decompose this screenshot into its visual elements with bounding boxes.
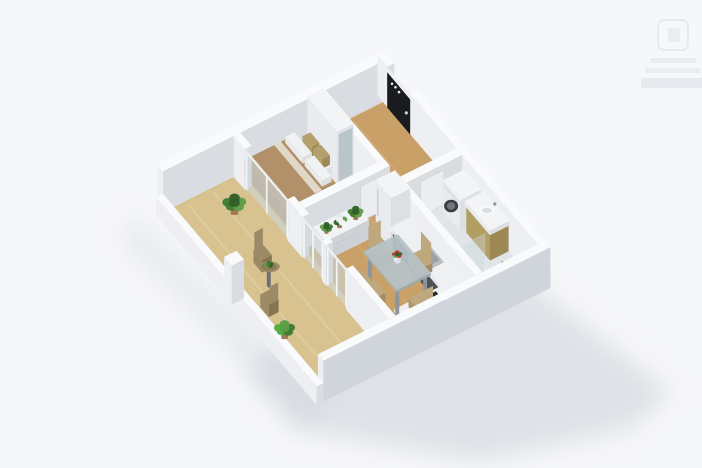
watermark-text-line-3 [641, 78, 702, 88]
bedroom-window-mullion [266, 176, 268, 215]
entrance-door-sign-2 [394, 86, 397, 89]
bedroom-window-frame-2 [286, 200, 288, 239]
floorplan-canvas [0, 0, 702, 468]
vanity-faucet [493, 202, 496, 205]
living-window-2-frame-2 [345, 269, 347, 308]
watermark-text-line-2 [645, 68, 700, 73]
floorplan-3d-render [0, 0, 702, 468]
watermark-logo-glyph [668, 28, 680, 42]
living-window-2-frame [327, 248, 329, 287]
terrace-pillar [224, 251, 244, 305]
entrance-door-sign [391, 83, 394, 86]
living-window-mullion [312, 230, 314, 269]
living-window-frame [303, 220, 305, 259]
living-window-2-mullion [336, 258, 338, 297]
washing-machine-door-ring [447, 202, 455, 210]
vanity-sink-basin [482, 208, 492, 213]
watermark-text-line [650, 58, 696, 63]
bedroom-window-frame [246, 152, 248, 191]
living-window-frame-2 [321, 241, 323, 280]
entrance-door-sign-3 [398, 91, 401, 94]
entrance-door-handle [405, 111, 408, 114]
wardrobe-mirror [339, 128, 353, 181]
fridge-handle [377, 189, 378, 216]
